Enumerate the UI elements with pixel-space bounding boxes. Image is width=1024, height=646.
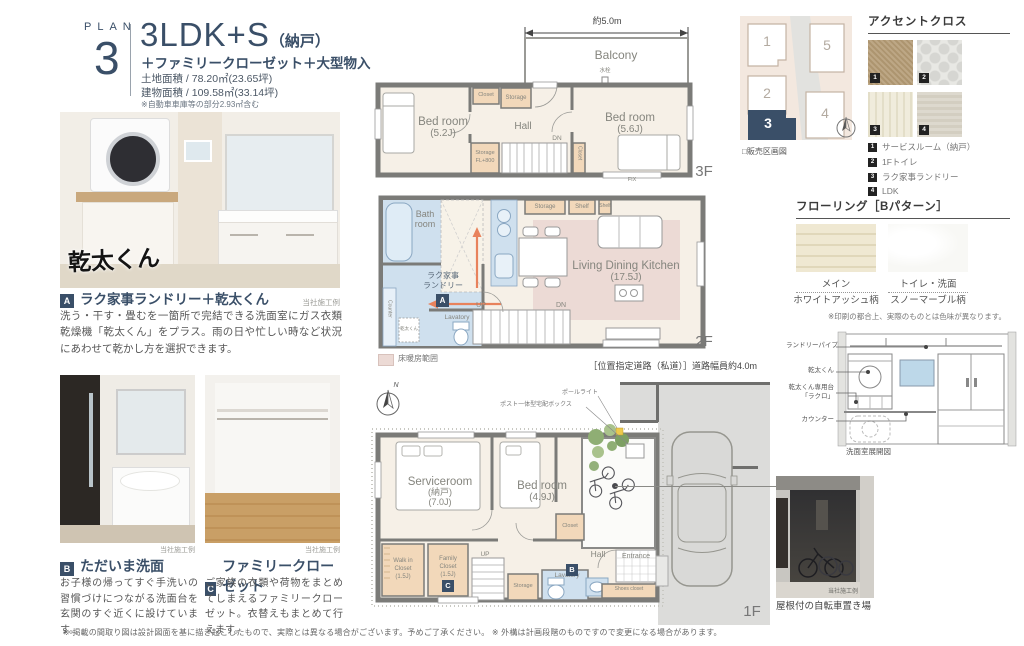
bike-photo-leader-line bbox=[615, 486, 776, 487]
storage-top-label-3f: Storage bbox=[505, 95, 526, 101]
accent-swatch-4-num: 4 bbox=[919, 125, 929, 135]
closet-top-label-3f: Closet bbox=[478, 93, 494, 99]
bike-right-pillar bbox=[860, 476, 874, 598]
delivery-box-label: ポスト一体型宅配ボックス bbox=[500, 402, 572, 408]
flooring-title: フローリング［Bパターン］ bbox=[796, 201, 1010, 219]
flooring-swatch-toilet bbox=[888, 224, 968, 272]
flooring-toilet-pattern: スノーマーブル柄 bbox=[890, 296, 965, 306]
bike-back-door bbox=[816, 500, 828, 530]
lot-4-label: 4 bbox=[821, 106, 829, 121]
washroom-counter-label: カウンター bbox=[786, 417, 834, 424]
feature-a-body: 洗う・干す・畳むを一箇所で完結できる洗面室にガス衣類乾燥機「乾太くん」をプラス。… bbox=[60, 308, 342, 357]
lot-2-label: 2 bbox=[763, 86, 771, 101]
lot-5-label: 5 bbox=[823, 38, 831, 53]
plan-subtitle: ＋ファミリークローゼット＋大型物入 bbox=[141, 57, 371, 71]
photo-bike-parking: 当社施工例 bbox=[776, 476, 874, 598]
bike-left-door bbox=[776, 498, 788, 568]
floor-plan-1f: N ポールライト ポスト一体型宅配ボックス Serviceroom (納戸) (… bbox=[358, 382, 770, 625]
counter-label-2f: Counter bbox=[386, 300, 391, 318]
flooring-divider-toilet bbox=[888, 292, 968, 293]
wic-label-3: (1.5J) bbox=[395, 574, 410, 580]
closet-side-label-3f: Closet bbox=[576, 146, 581, 160]
badge-c-1f: C bbox=[442, 580, 454, 592]
floor-plan-1f-drawing bbox=[358, 382, 770, 625]
bedroom-size-1f: (4.9J) bbox=[529, 493, 555, 504]
accent-swatch-4: 4 bbox=[917, 92, 962, 137]
storage-b2-label-3f: FL+800 bbox=[476, 159, 495, 165]
floor-plan-3f-drawing bbox=[373, 14, 718, 186]
site-map: 1 2 3 5 4 bbox=[740, 16, 862, 144]
washbasin-mirror bbox=[116, 389, 186, 455]
entrance-door bbox=[60, 375, 100, 527]
wic-label-2: Closet bbox=[394, 566, 411, 572]
accent-swatch-2: 2 bbox=[917, 40, 962, 85]
feature-a-badge: A bbox=[60, 294, 74, 308]
floor-heating-legend: 床暖房範囲 bbox=[398, 355, 438, 363]
accent-legend-3-num: 3 bbox=[868, 173, 877, 182]
header-divider bbox=[130, 24, 131, 96]
floor-heating-swatch bbox=[378, 354, 394, 366]
accent-legend-2-label: 1Fトイレ bbox=[882, 156, 917, 168]
flooring-toilet-label: トイレ・洗面 bbox=[899, 280, 956, 290]
flyer-page: PLAN 3 3LDK+S（納戸） ＋ファミリークローゼット＋大型物入 土地面積… bbox=[0, 0, 1024, 646]
bedroom2-label-3f: Bed room bbox=[605, 112, 655, 124]
photo-c-floor bbox=[205, 493, 340, 543]
family-closet-label-1: Family bbox=[439, 556, 457, 562]
washroom-stand-label-2: 「ラクロ」 bbox=[786, 394, 834, 401]
washroom-pipe-label: ランドリーパイプ bbox=[786, 343, 834, 350]
accent-cloth-title: アクセントクロス bbox=[868, 16, 1010, 34]
photo-window bbox=[184, 140, 212, 162]
accent-legend-2-num: 2 bbox=[868, 158, 877, 167]
accent-swatch-2-num: 2 bbox=[919, 73, 929, 83]
storage-label-1f: Storage bbox=[513, 584, 532, 590]
dn-label-2f: DN bbox=[556, 302, 566, 309]
closet-label-1f: Closet bbox=[562, 524, 578, 530]
vanity-mirror bbox=[225, 134, 334, 212]
accent-legend-2: 2 1Fトイレ bbox=[868, 156, 917, 168]
laundry-label-1: ラク家事 bbox=[427, 272, 459, 280]
up-label-2f: UP bbox=[476, 302, 486, 309]
faucet-label: 水栓 bbox=[599, 69, 610, 75]
bedroom2-size-3f: (5.6J) bbox=[617, 125, 643, 136]
accent-swatch-3-num: 3 bbox=[870, 125, 880, 135]
plan-title: 3LDK+S（納戸） bbox=[140, 18, 330, 53]
north-label: N bbox=[393, 382, 398, 389]
shelf2-label-2f: Shelf bbox=[599, 204, 610, 209]
washroom-caption: 洗面室展開図 bbox=[846, 448, 891, 456]
flooring-swatch-main bbox=[796, 224, 876, 272]
photo-b-credit: 当社施工例 bbox=[60, 545, 195, 555]
dn-label-3f: DN bbox=[552, 136, 561, 143]
hall-label-3f: Hall bbox=[514, 122, 531, 133]
feature-b-title: ただいま洗面 bbox=[80, 556, 164, 576]
accent-legend-3-label: ラク家事ランドリー bbox=[882, 171, 959, 183]
feature-a-header: A ラク家事ランドリー＋乾太くん 当社施工例 bbox=[60, 288, 340, 308]
accent-legend-1-label: サービスルーム（納戸） bbox=[882, 141, 975, 153]
feature-a-credit: 当社施工例 bbox=[303, 297, 341, 308]
family-closet-label-2: Closet bbox=[439, 564, 456, 570]
lot-1-label: 1 bbox=[763, 34, 771, 49]
bike-photo-caption: 屋根付の自転車置き場 bbox=[776, 602, 871, 612]
fix-label-3f: FIX bbox=[628, 178, 637, 184]
feature-a-title: ラク家事ランドリー＋乾太くん bbox=[80, 288, 269, 308]
site-map-drawing bbox=[740, 16, 862, 144]
photo-laundry-room: 乾太くん bbox=[60, 112, 340, 288]
balcony-label: Balcony bbox=[595, 49, 638, 62]
area-note: ※自動車車庫等の部分2.93㎡含む bbox=[141, 101, 259, 109]
floor-name-1f: 1F bbox=[743, 604, 761, 620]
dryer-shelf bbox=[76, 192, 178, 202]
photo-c-credit: 当社施工例 bbox=[205, 545, 340, 555]
lot-3-label: 3 bbox=[764, 116, 772, 131]
bedroom1-label-3f: Bed room bbox=[418, 116, 468, 128]
feature-b-header: B ただいま洗面 bbox=[60, 556, 200, 576]
storage-b1-label-3f: Storage bbox=[475, 151, 494, 157]
feature-b-badge: B bbox=[60, 562, 74, 576]
washroom-elevation: ランドリーパイプ 乾太くん 乾太くん専用台 「ラクロ」 カウンター 洗面室展開図 bbox=[786, 330, 1024, 462]
photo-family-closet bbox=[205, 375, 340, 543]
door-glass-slit bbox=[89, 393, 93, 487]
closet-hanger-rod bbox=[217, 418, 328, 420]
accent-legend-1: 1 サービスルーム（納戸） bbox=[868, 141, 975, 153]
cabinet-handle-1 bbox=[230, 234, 258, 236]
bath-label-2: room bbox=[415, 220, 436, 229]
accent-legend-4-label: LDK bbox=[882, 186, 899, 196]
washroom-stand-label-1: 乾太くん専用台 bbox=[786, 385, 834, 392]
plan-number: 3 bbox=[94, 34, 120, 82]
flooring-main-label: メイン bbox=[822, 280, 851, 290]
flooring-main-pattern: ホワイトアッシュ柄 bbox=[793, 296, 879, 306]
bedroom-label-1f: Bed room bbox=[517, 480, 567, 492]
washroom-kanta-label: 乾太くん bbox=[786, 368, 834, 375]
photo-entrance-washbasin bbox=[60, 375, 195, 543]
hall-label-1f: Hall bbox=[591, 550, 606, 559]
dim-label-3f: 約5.0m bbox=[592, 17, 621, 26]
photo-brick-wall bbox=[178, 112, 222, 288]
ldk-size-label: (17.5J) bbox=[610, 273, 641, 284]
laundry-label-2: ランドリー bbox=[423, 282, 463, 290]
flooring-note: ※印刷の都合上、実際のものとは色味が異なります。 bbox=[828, 313, 1006, 321]
floor-plan-2f: Bath room ラク家事 ランドリー A Counter 乾太くん Lava… bbox=[373, 192, 718, 352]
ldk-label: Living Dining Kitchen bbox=[572, 260, 679, 272]
plan-title-main: 3LDK+S bbox=[140, 16, 270, 53]
site-map-caption: □販売区画図 bbox=[742, 148, 787, 156]
closet-shelf bbox=[217, 409, 328, 412]
photo-b-floor bbox=[60, 525, 195, 543]
floor-plan-3f: 約5.0m Balcony 水栓 Bed room (5.2J) Hall Be… bbox=[373, 14, 718, 186]
kanta-logo: 乾太くん bbox=[67, 246, 160, 275]
lavatory-label-2f: Lavatory bbox=[445, 315, 470, 322]
accent-legend-1-num: 1 bbox=[868, 143, 877, 152]
accent-swatch-1-num: 1 bbox=[870, 73, 880, 83]
accent-swatch-1: 1 bbox=[868, 40, 913, 85]
building-area: 建物面積 / 109.58㎡(33.14坪) bbox=[141, 88, 278, 99]
kanta-label-2f: 乾太くん bbox=[400, 327, 418, 332]
bike-silhouettes bbox=[794, 532, 854, 582]
closet-back-wall bbox=[215, 383, 330, 495]
entrance-label: Entrance bbox=[622, 553, 650, 560]
family-closet-label-3: (1.5J) bbox=[440, 572, 455, 578]
footer-note: ※ 掲載の間取り図は設計図面を基に描き起こしたもので、実際とは異なる場合がござい… bbox=[63, 629, 983, 637]
shelf1-label-2f: Shelf bbox=[575, 204, 589, 210]
dryer-door bbox=[106, 132, 160, 186]
land-area: 土地面積 / 78.20㎡(23.65坪) bbox=[141, 74, 272, 85]
badge-a-2f: A bbox=[436, 294, 449, 307]
floor-name-3f: 3F bbox=[695, 164, 713, 180]
shoes-closet-label: Shoes closet bbox=[615, 587, 644, 592]
floor-name-2f: 2F bbox=[695, 334, 713, 350]
bike-photo-credit: 当社施工例 bbox=[806, 586, 858, 595]
serviceroom-label-3: (7.0J) bbox=[428, 498, 451, 507]
accent-legend-4: 4 LDK bbox=[868, 186, 899, 196]
flooring-divider-main bbox=[796, 292, 876, 293]
accent-legend-3: 3 ラク家事ランドリー bbox=[868, 171, 959, 183]
accent-legend-4-num: 4 bbox=[868, 187, 877, 196]
road-note: ［位置指定道路（私道）］道路幅員約4.0m bbox=[560, 362, 757, 371]
cabinet-handle-2 bbox=[286, 234, 314, 236]
washbasin-bowl bbox=[120, 471, 180, 491]
plan-title-note: （納戸） bbox=[270, 33, 330, 50]
pole-light-label: ポールライト bbox=[562, 390, 598, 396]
badge-b-1f: B bbox=[566, 564, 578, 576]
bedroom1-size-3f: (5.2J) bbox=[430, 129, 456, 140]
wic-label-1: Walk in bbox=[393, 558, 412, 564]
storage-label-2f: Storage bbox=[534, 204, 555, 210]
up-label-1f: UP bbox=[480, 552, 489, 559]
accent-swatch-3: 3 bbox=[868, 92, 913, 137]
